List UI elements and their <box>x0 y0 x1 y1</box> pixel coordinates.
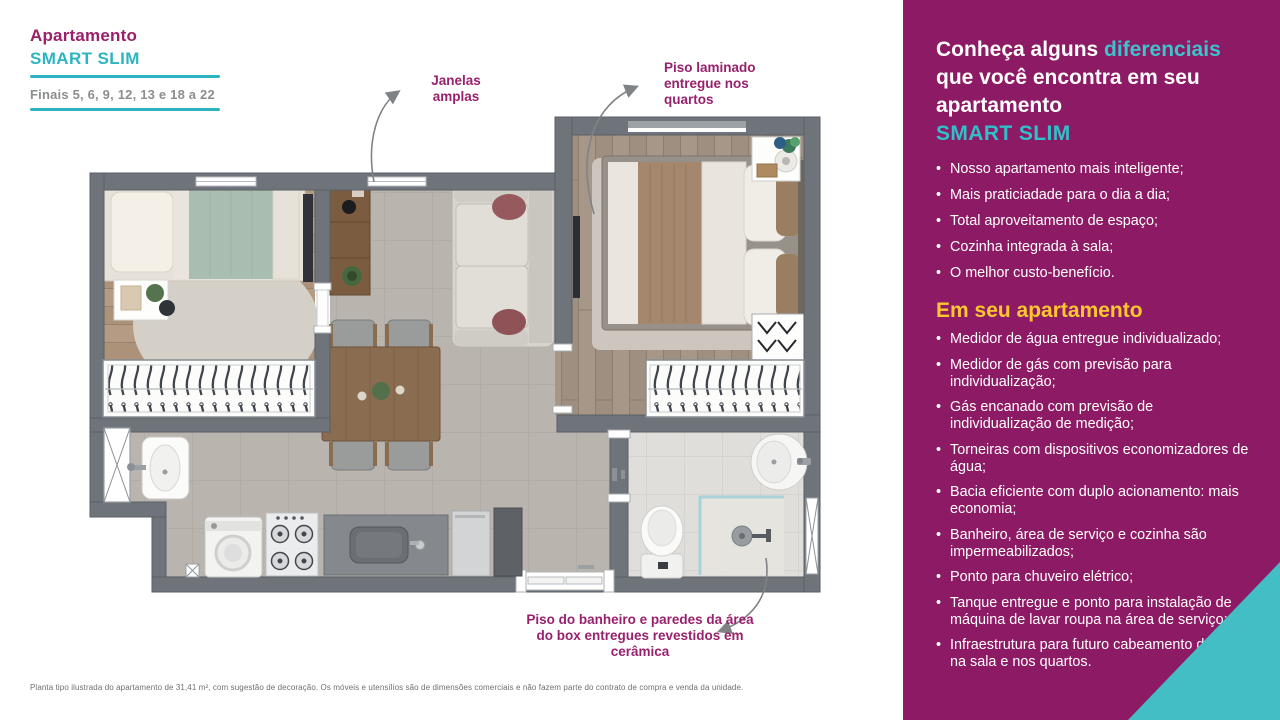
service-window <box>104 428 130 502</box>
heading-line-3: apartamento <box>936 92 1254 120</box>
feature-item: Banheiro, área de serviço e cozinha são … <box>936 527 1254 561</box>
floor-plan <box>0 0 905 720</box>
bathroom-window <box>806 498 818 574</box>
callout-laminate: Piso laminado entregue nos quartos <box>664 60 770 108</box>
feature-item: O melhor custo-benefício. <box>936 265 1254 282</box>
bedroom-2-closet <box>646 360 804 417</box>
callout-windows: Janelas amplas <box>408 73 504 105</box>
fridge <box>494 508 522 576</box>
leader-windows <box>371 92 398 182</box>
bedroom-2-furniture <box>573 137 804 360</box>
bedroom-1-closet <box>103 360 315 417</box>
heading-line-1: Conheça alguns diferenciais <box>936 36 1254 64</box>
bedroom-1-door <box>314 283 331 333</box>
sidebar-heading: Conheça alguns diferenciais que você enc… <box>936 36 1254 148</box>
sofa-pillow <box>492 194 526 220</box>
feature-item: Ponto para chuveiro elétrico; <box>936 569 1254 586</box>
feature-item: Cozinha integrada à sala; <box>936 239 1254 256</box>
toilet <box>641 506 683 578</box>
washing-machine <box>205 517 262 577</box>
shoe-rack <box>752 314 804 360</box>
bedroom-2-tv <box>573 216 580 298</box>
stove <box>266 513 318 576</box>
feature-item: Medidor de gás com previsão para individ… <box>936 357 1254 391</box>
heading-highlight: diferenciais <box>1104 38 1221 61</box>
sofa <box>452 185 554 347</box>
shower-box <box>700 497 784 575</box>
dishwasher <box>452 511 490 576</box>
nightstand <box>752 137 800 181</box>
kitchen-counter-sink <box>324 515 448 575</box>
feature-item: Bacia eficiente com duplo acionamento: m… <box>936 484 1254 518</box>
heading-brand: SMART SLIM <box>936 120 1254 148</box>
sofa-pillow <box>492 309 526 335</box>
floor-drain <box>186 564 199 577</box>
page: Apartamento SMART SLIM Finais 5, 6, 9, 1… <box>0 0 1280 720</box>
apartment-features-list: Medidor de água entregue individualizado… <box>936 331 1254 671</box>
differentials-list: Nosso apartamento mais inteligente;Mais … <box>936 161 1254 282</box>
feature-item: Nosso apartamento mais inteligente; <box>936 161 1254 178</box>
feature-item: Tanque entregue e ponto para instalação … <box>936 595 1254 629</box>
section-title-apartment: Em seu apartamento <box>936 299 1254 323</box>
feature-item: Gás encanado com previsão de individuali… <box>936 399 1254 433</box>
feature-item: Medidor de água entregue individualizado… <box>936 331 1254 348</box>
legal-disclaimer: Planta tipo ilustrada do apartamento de … <box>30 683 890 692</box>
heading-line-2: que você encontra em seu <box>936 64 1254 92</box>
bedroom-1-tv <box>303 194 313 282</box>
tv-cabinet <box>330 187 370 295</box>
feature-item: Mais praticiadade para o dia a dia; <box>936 187 1254 204</box>
feature-item: Total aproveitamento de espaço; <box>936 213 1254 230</box>
callout-bathroom: Piso do banheiro e paredes da área do bo… <box>520 612 760 660</box>
feature-item: Torneiras com dispositivos economizadore… <box>936 442 1254 476</box>
sidebar: Conheça alguns diferenciais que você enc… <box>903 0 1280 720</box>
